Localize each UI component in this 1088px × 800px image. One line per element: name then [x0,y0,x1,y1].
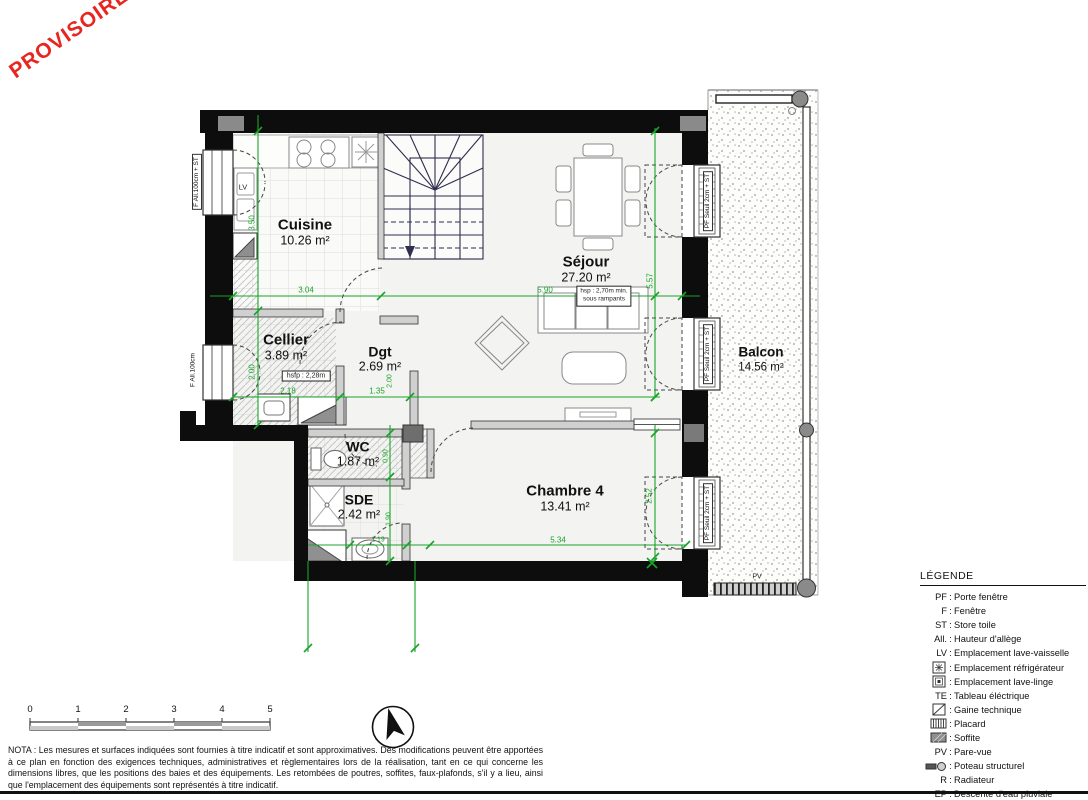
dim-cellier-width: 2.18 [280,387,296,396]
scale-bar [30,718,270,730]
scale-tick-3: 3 [171,704,176,715]
nota-text: NOTA : Les mesures et surfaces indiquées… [8,745,543,791]
te-box [403,425,423,442]
dim-chambre-width: 5.34 [550,536,566,545]
legend-item-te: TE:Tableau éléctrique [920,689,1086,703]
legend-item-f: F:Fenêtre [920,604,1086,618]
room-label-wc: WC1.87 m² [337,439,379,470]
legend-item-all: All.:Hauteur d'allège [920,632,1086,646]
legend-item-poteau: :Poteau structurel [920,759,1086,773]
pare-vue-bar [714,583,796,595]
pv-label: PV [752,574,761,581]
wall-gray-insert [684,424,704,442]
legend-item-ep: EP:Descente d'eau pluviale [920,787,1086,800]
legend-title: LÉGENDE [920,570,1086,586]
window-left-top [203,150,233,215]
room-label-balcon: Balcon14.56 m² [738,345,783,376]
staircase [383,135,483,259]
window-label-left-top: F All.100cm + ST [192,154,202,210]
dim-wc-height: 0.90 [383,449,390,463]
gaine-symbol [233,233,257,259]
room-label-sde: SDE2.42 m² [338,492,380,523]
legend-item-soffite: :Soffite [920,731,1086,745]
legend: LÉGENDE PF:Porte fenêtre F:Fenêtre ST:St… [920,570,1086,800]
hsfp-annotation: hsfp : 2,28m [282,371,331,382]
radiator-symbol [634,419,680,430]
soffite-icon [930,732,947,743]
wall-gray-insert [680,116,706,131]
room-label-cuisine: Cuisine10.26 m² [278,218,332,249]
floor-plan-page: PROVISOIRE [0,0,1088,800]
lv-label: LV [239,183,248,192]
legend-item-lv: LV:Emplacement lave-vaisselle [920,646,1086,660]
window-left-bottom [203,345,233,400]
fridge-symbol [352,137,380,167]
legend-item-r: R:Radiateur [920,773,1086,787]
room-label-chambre4: Chambre 413.41 m² [526,484,604,515]
scale-tick-1: 1 [75,704,80,715]
legend-item-gaine: :Gaine technique [920,703,1086,717]
north-arrow-icon [373,706,414,748]
placard-icon [930,718,947,729]
legend-item-fridge: :Emplacement réfrigérateur [920,660,1086,674]
legend-item-pf: PF:Porte fenêtre [920,590,1086,604]
room-label-sejour: Séjour27.20 m² [561,255,610,286]
legend-item-st: ST:Store toile [920,618,1086,632]
dim-chambre-height: 2.52 [645,488,654,504]
window-label-right-bottom: PF Seuil 2cm + ST [703,483,713,543]
dim-cuisine-height: 3.50 [248,215,257,231]
legend-item-pv: PV:Pare-vue [920,745,1086,759]
dim-sejour-width: 5.90 [537,286,553,295]
dim-dgt-height: 2.00 [387,374,394,388]
washer-icon [932,675,947,688]
dim-cellier-height: 2.00 [248,364,257,380]
poteau-icon [925,761,947,772]
scale-tick-0: 0 [27,704,32,715]
dim-sejour-height: 5.57 [646,273,655,289]
wall-gray-insert [218,116,244,131]
gaine-icon [932,703,947,716]
legend-item-placard: :Placard [920,717,1086,731]
room-label-cellier: Cellier3.89 m² [263,333,309,364]
window-label-left-bottom: F All.100cm [190,353,197,387]
coffee-table [562,352,626,384]
bottom-rule [0,791,1088,794]
dim-sde-width: 1.19 [371,537,385,544]
dim-sde-height: 1.90 [386,512,393,526]
dim-cuisine-width: 3.04 [298,286,314,295]
scale-tick-2: 2 [123,704,128,715]
window-label-right-top: PF Seuil 2cm + ST [703,171,713,231]
legend-item-washer: :Emplacement lave-linge [920,675,1086,689]
washer-symbol [258,394,290,421]
fridge-icon [932,661,947,674]
window-label-right-mid: PF Seuil 2cm + ST [703,324,713,384]
scale-tick-5: 5 [267,704,272,715]
room-label-dgt: Dgt2.69 m² [359,344,401,375]
hsp-annotation: hsp : 2,70m min. sous rampants [576,286,631,307]
dim-dgt-width: 1.35 [369,387,385,396]
scale-tick-4: 4 [219,704,224,715]
